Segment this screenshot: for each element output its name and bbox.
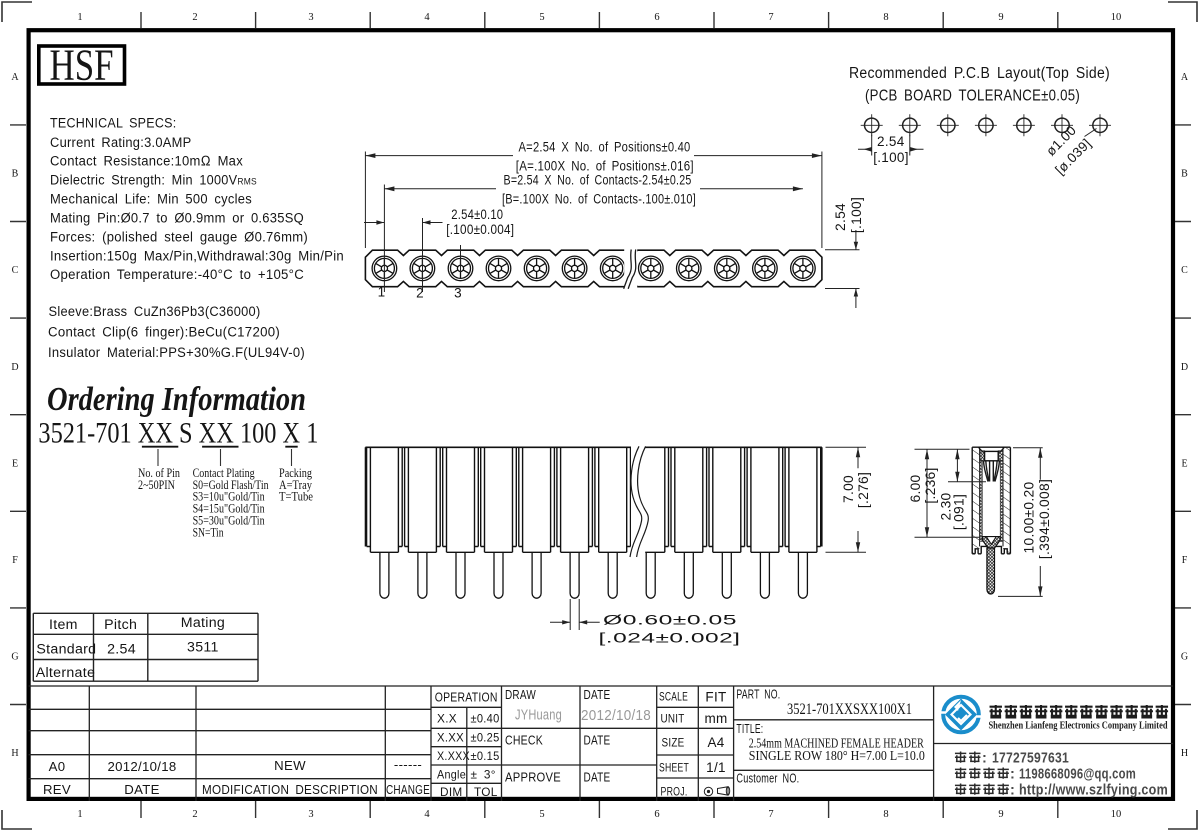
svg-text:7: 7 (768, 809, 773, 820)
svg-text:1: 1 (378, 285, 386, 300)
svg-text::: : (1010, 767, 1015, 783)
svg-text:DATE: DATE (584, 770, 611, 785)
svg-text:1: 1 (77, 12, 82, 23)
svg-text:H: H (11, 748, 18, 759)
svg-text:F: F (1182, 555, 1188, 566)
svg-text:Dielectric Strength: Min 1000V: Dielectric Strength: Min 1000VRMS (50, 173, 257, 189)
svg-text:8: 8 (883, 12, 888, 23)
svg-text:3511: 3511 (187, 640, 219, 656)
svg-text:2.54: 2.54 (107, 642, 136, 658)
svg-text:9: 9 (998, 809, 1003, 820)
svg-text:2~50PIN: 2~50PIN (138, 478, 175, 492)
svg-text:A4: A4 (707, 735, 724, 750)
svg-text:DIM: DIM (440, 785, 463, 799)
svg-text:[.100]: [.100] (849, 197, 864, 233)
svg-text:TITLE:: TITLE: (736, 721, 763, 736)
svg-text:Angle: Angle (437, 767, 466, 781)
svg-text:SCALE: SCALE (659, 690, 688, 704)
svg-text:[.236]: [.236] (923, 467, 938, 503)
svg-text:D: D (1181, 362, 1188, 373)
svg-text:2.54: 2.54 (877, 134, 905, 149)
svg-text:X.XX: X.XX (437, 731, 464, 745)
svg-text:Shenzhen Lianfeng Electronics: Shenzhen Lianfeng Electronics Company Li… (989, 721, 1168, 732)
svg-text:A=2.54 X No. of Positions±0.40: A=2.54 X No. of Positions±0.40 (519, 140, 691, 156)
svg-text:HSF: HSF (50, 41, 114, 90)
svg-text:DATE: DATE (584, 687, 611, 702)
svg-text:5: 5 (539, 12, 544, 23)
svg-text:http://www.szlfying.com: http://www.szlfying.com (1019, 783, 1168, 799)
svg-text:10.00±0.20: 10.00±0.20 (1022, 481, 1037, 553)
svg-text:2.54±0.10: 2.54±0.10 (451, 207, 503, 223)
svg-text:DRAW: DRAW (505, 687, 536, 702)
svg-text:C: C (12, 265, 19, 276)
svg-text:TOL: TOL (474, 785, 498, 799)
svg-text:2: 2 (192, 12, 197, 23)
svg-text:SIZE: SIZE (662, 736, 685, 750)
svg-text:Operation Temperature:-40°C to: Operation Temperature:-40°C to +105°C (50, 267, 304, 283)
svg-text:FIT: FIT (705, 690, 726, 705)
svg-text:Item: Item (49, 617, 78, 633)
svg-text:3521-701XXSXX100X1: 3521-701XXSXX100X1 (787, 701, 912, 718)
svg-text:[.276]: [.276] (856, 472, 871, 508)
svg-text:Pitch: Pitch (104, 617, 137, 633)
svg-text:Contact Clip(6 finger):BeCu(C1: Contact Clip(6 finger):BeCu(C17200) (48, 325, 280, 341)
svg-text:Current Rating:3.0AMP: Current Rating:3.0AMP (50, 135, 192, 151)
svg-text:4: 4 (424, 12, 430, 23)
svg-text:D: D (11, 362, 18, 373)
svg-text:G: G (11, 652, 18, 663)
svg-text:X.XXX: X.XXX (437, 749, 470, 763)
svg-text:Sleeve:Brass CuZn36Pb3(C36000): Sleeve:Brass CuZn36Pb3(C36000) (49, 304, 261, 320)
svg-text::: : (1010, 783, 1015, 799)
svg-text:Standard: Standard (36, 642, 96, 658)
svg-text:3: 3 (454, 286, 462, 301)
svg-text:±0.40: ±0.40 (471, 712, 500, 726)
svg-text:Recommended P.C.B Layout(Top S: Recommended P.C.B Layout(Top Side) (849, 65, 1110, 82)
svg-text:2: 2 (192, 809, 197, 820)
svg-text:3: 3 (308, 809, 313, 820)
svg-text:1: 1 (77, 809, 82, 820)
svg-text:2012/10/18: 2012/10/18 (107, 759, 176, 774)
svg-text:Ordering Information: Ordering Information (47, 381, 306, 418)
svg-text:6: 6 (654, 809, 659, 820)
svg-text:[.100]: [.100] (873, 150, 909, 165)
svg-text:6: 6 (654, 12, 659, 23)
svg-text:PROJ.: PROJ. (661, 785, 688, 799)
svg-text:B=2.54 X No. of Contacts-2.54±: B=2.54 X No. of Contacts-2.54±0.25 (504, 173, 692, 189)
svg-text:MODIFICATION DESCRIPTION: MODIFICATION DESCRIPTION (202, 782, 378, 797)
svg-text:mm: mm (704, 711, 727, 726)
svg-text:OPERATION: OPERATION (435, 691, 498, 705)
svg-text:3521-701 XX S XX 100 X 1: 3521-701 XX S XX 100 X 1 (38, 417, 318, 450)
svg-text:DATE: DATE (124, 782, 159, 797)
svg-text:Insertion:150g Max/Pin,Withdra: Insertion:150g Max/Pin,Withdrawal:30g Mi… (50, 248, 344, 264)
svg-text:TECHNICAL SPECS:: TECHNICAL SPECS: (50, 116, 177, 132)
svg-text:Forces: (polished steel gauge: Forces: (polished steel gauge Ø0.76mm) (50, 230, 308, 246)
svg-text:(PCB BOARD TOLERANCE±0.05): (PCB BOARD TOLERANCE±0.05) (865, 88, 1080, 105)
svg-text:Customer NO.: Customer NO. (736, 771, 799, 786)
svg-text::: : (982, 751, 987, 767)
svg-text:[.100±0.004]: [.100±0.004] (446, 222, 514, 238)
svg-text:H: H (1181, 748, 1188, 759)
svg-text:------: ------ (394, 757, 422, 772)
svg-text:Alternate: Alternate (36, 665, 95, 681)
svg-text:[.091]: [.091] (952, 494, 967, 530)
svg-text:UNIT: UNIT (661, 712, 685, 726)
svg-text:2012/10/18: 2012/10/18 (581, 707, 651, 724)
svg-text:±0.15: ±0.15 (471, 749, 500, 763)
svg-text:CHANGE: CHANGE (386, 782, 430, 797)
svg-text:T=Tube: T=Tube (279, 490, 313, 504)
svg-text:G: G (1181, 652, 1188, 663)
svg-text:CHECK: CHECK (505, 733, 543, 748)
svg-text:[B=.100X No. of Contacts-.100±: [B=.100X No. of Contacts-.100±.010] (502, 192, 696, 208)
svg-text:APPROVE: APPROVE (505, 770, 561, 785)
svg-text:1/1: 1/1 (706, 760, 726, 775)
svg-text:9: 9 (998, 12, 1003, 23)
svg-text:SINGLE ROW 180° H=7.00 L=10.0: SINGLE ROW 180° H=7.00 L=10.0 (749, 749, 925, 764)
svg-text:± 3°: ± 3° (471, 767, 496, 781)
svg-text:Ø0.60±0.05: Ø0.60±0.05 (603, 613, 737, 629)
svg-text:C: C (1181, 265, 1188, 276)
svg-text:PART NO.: PART NO. (736, 687, 780, 702)
svg-text:REV: REV (43, 782, 71, 797)
svg-text:17727597631: 17727597631 (992, 751, 1069, 767)
svg-text:Insulator Material:PPS+30%G.F(: Insulator Material:PPS+30%G.F(UL94V-0) (48, 345, 305, 361)
svg-text:3: 3 (308, 12, 313, 23)
svg-text:2: 2 (416, 286, 424, 301)
svg-text:8: 8 (883, 809, 888, 820)
svg-text:7.00: 7.00 (841, 475, 856, 503)
svg-text:±0.25: ±0.25 (471, 731, 500, 745)
svg-text:A: A (1181, 72, 1189, 83)
svg-text:SHEET: SHEET (659, 761, 689, 775)
svg-text:5: 5 (539, 809, 544, 820)
svg-text:NEW: NEW (274, 758, 306, 773)
svg-text:10: 10 (1111, 12, 1122, 23)
svg-text:A: A (11, 72, 19, 83)
svg-text:10: 10 (1111, 809, 1122, 820)
svg-text:1198668096@qq.com: 1198668096@qq.com (1019, 767, 1136, 783)
svg-text:Contact Resistance:10mΩ Max: Contact Resistance:10mΩ Max (50, 154, 243, 170)
svg-text:B: B (12, 169, 19, 180)
svg-text:7: 7 (768, 12, 773, 23)
svg-text:Mating Pin:Ø0.7 to Ø0.9mm or 0: Mating Pin:Ø0.7 to Ø0.9mm or 0.635SQ (50, 210, 304, 226)
svg-text:DATE: DATE (584, 733, 611, 748)
svg-text:B: B (1181, 169, 1188, 180)
svg-text:SN=Tin: SN=Tin (193, 525, 224, 539)
svg-text:E: E (1181, 458, 1187, 469)
svg-text:Mating: Mating (181, 615, 225, 631)
svg-text:6.00: 6.00 (908, 474, 923, 502)
svg-text:A0: A0 (49, 759, 66, 774)
svg-text:[.024±0.002]: [.024±0.002] (599, 631, 741, 647)
svg-text:Mechanical Life: Min 500 cycle: Mechanical Life: Min 500 cycles (50, 192, 252, 208)
svg-text:2.54: 2.54 (833, 203, 848, 231)
svg-text:F: F (12, 555, 18, 566)
svg-text:X.X: X.X (437, 712, 457, 726)
svg-text:[.394±0.008]: [.394±0.008] (1037, 479, 1052, 559)
svg-text:JYHuang: JYHuang (515, 707, 562, 724)
svg-text:E: E (12, 458, 18, 469)
svg-text:4: 4 (424, 809, 430, 820)
